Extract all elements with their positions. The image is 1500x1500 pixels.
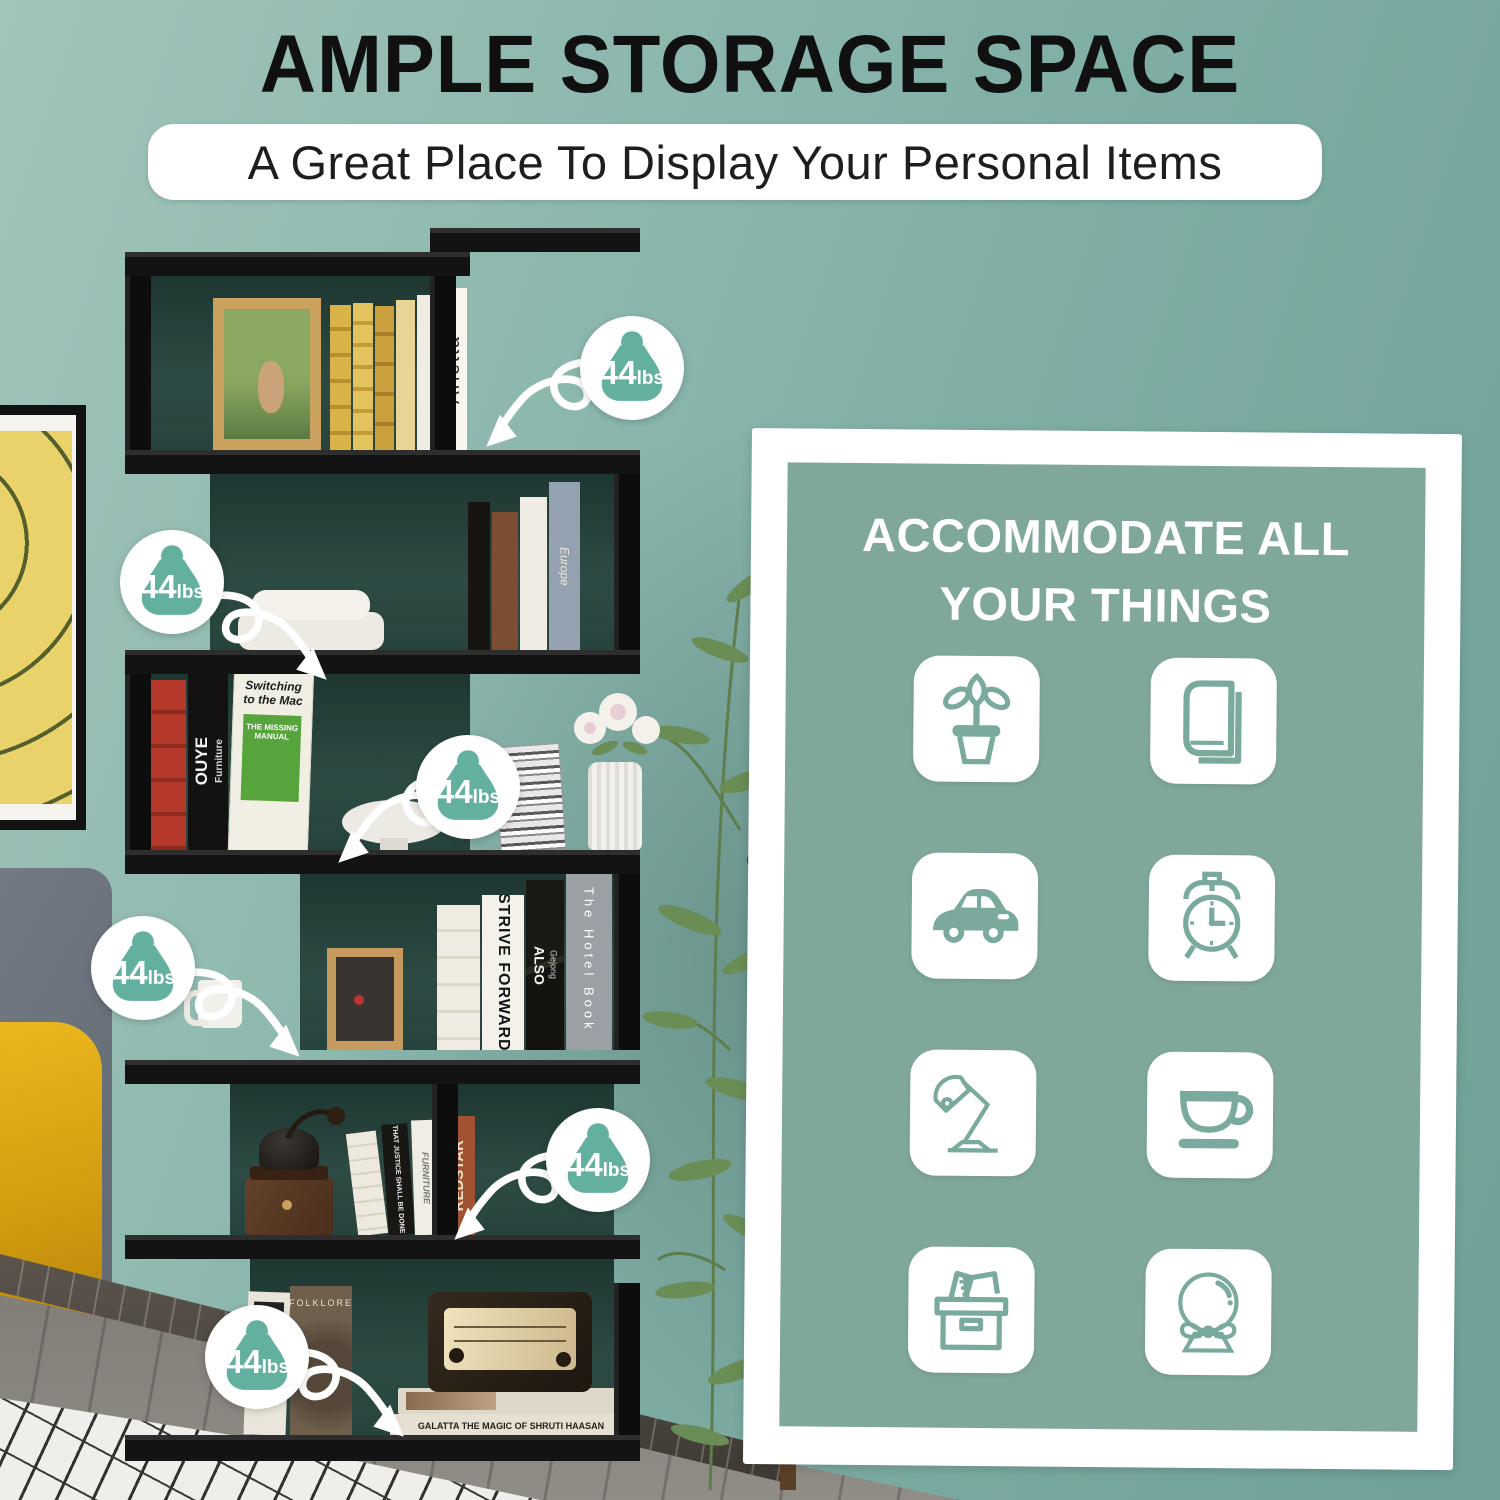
book-spine-also: ALSOGejong <box>526 880 564 1050</box>
shelf-board-top <box>125 252 470 276</box>
book-spine-europe: Europe <box>549 482 580 650</box>
badge-unit: lbs <box>262 1357 289 1378</box>
book-spine-strive: STRIVE FORWARD <box>482 895 524 1050</box>
book-title: FURNITURE <box>420 1151 432 1203</box>
panel-heading-line1: ACCOMMODATE ALL <box>787 500 1426 574</box>
weight-capacity-badge: 44lbs <box>416 735 520 839</box>
picture-frame-small <box>327 948 403 1050</box>
badge-value: 44 <box>436 773 473 810</box>
book-title: Europe <box>558 547 572 586</box>
shelf-side-panel <box>125 674 151 850</box>
book-title: THAT JUSTICE SHALL BE DONE <box>391 1125 406 1234</box>
tile-car <box>911 852 1038 979</box>
tile-crystal-ball <box>1145 1248 1272 1375</box>
tile-desk-lamp <box>909 1049 1036 1176</box>
car-icon <box>922 864 1027 969</box>
book-spine <box>468 502 490 650</box>
book-spine <box>375 306 394 450</box>
book-subtitle: Gejong <box>549 950 559 979</box>
badge-label: 44lbs <box>580 356 684 389</box>
shelf-side-panel <box>125 252 151 450</box>
alarm-clock-icon <box>1159 866 1264 971</box>
badge-label: 44lbs <box>120 570 224 603</box>
storage-box-icon <box>919 1257 1024 1362</box>
book-subtitle: THE MISSING MANUAL <box>243 714 302 742</box>
headline: AMPLE STORAGE SPACE <box>38 18 1463 112</box>
badge-value: 44 <box>111 954 148 991</box>
crystal-ball-icon <box>1156 1260 1261 1365</box>
icon-grid <box>908 655 1277 1375</box>
weight-capacity-badge: 44lbs <box>91 916 195 1020</box>
tile-storage-box <box>908 1246 1035 1373</box>
framed-wall-art <box>0 405 86 830</box>
potted-plant-icon <box>924 667 1029 772</box>
coffee-cup-icon <box>1158 1063 1263 1168</box>
subheadline-banner: A Great Place To Display Your Personal I… <box>148 124 1322 200</box>
weight-capacity-badge: 44lbs <box>120 530 224 634</box>
tile-alarm-clock <box>1148 854 1275 981</box>
badge-value: 44 <box>140 568 177 605</box>
book-spine-ouye: OUYEFurniture <box>188 672 228 850</box>
shelf-side-panel <box>614 874 640 1050</box>
badge-value: 44 <box>600 354 637 391</box>
badge-unit: lbs <box>148 968 175 989</box>
book-spine <box>150 680 186 850</box>
book-spine <box>330 305 351 450</box>
book-spine <box>492 512 518 650</box>
book-spine <box>353 303 373 450</box>
shelf-board-top-ledge <box>430 228 640 252</box>
grinder-knob <box>282 1200 292 1210</box>
badge-unit: lbs <box>177 582 204 603</box>
tile-potted-plant <box>913 655 1040 782</box>
badge-value: 44 <box>566 1146 603 1183</box>
badge-unit: lbs <box>473 787 500 808</box>
book-title: ALSO <box>532 946 548 985</box>
ad-image: Arietta Europe OUYEFurniture Switching t… <box>0 0 1500 1500</box>
book-title: STRIVE FORWARD <box>494 895 512 1050</box>
badge-unit: lbs <box>637 368 664 389</box>
subheadline: A Great Place To Display Your Personal I… <box>248 135 1223 190</box>
book-icon <box>1161 669 1266 774</box>
radio-knob <box>449 1348 464 1363</box>
badge-unit: lbs <box>603 1160 630 1181</box>
radio-knob <box>556 1352 571 1367</box>
art-print <box>0 431 72 804</box>
tile-coffee-cup <box>1146 1051 1273 1178</box>
book-title: The Hotel Book <box>582 887 597 1033</box>
book-subtitle: Furniture <box>214 739 225 783</box>
panel-heading-line2: YOUR THINGS <box>786 568 1425 642</box>
info-panel-inner: ACCOMMODATE ALL YOUR THINGS <box>779 462 1425 1432</box>
weight-capacity-badge: 44lbs <box>546 1108 650 1212</box>
picture-frame-large <box>213 298 321 450</box>
book-title: OUYE <box>192 737 212 785</box>
white-vase <box>588 762 642 850</box>
book-spine <box>396 300 415 450</box>
weight-capacity-badge: 44lbs <box>580 316 684 420</box>
badge-label: 44lbs <box>416 775 520 808</box>
desk-lamp-icon <box>921 1061 1026 1166</box>
frame-photo <box>336 957 394 1041</box>
shelf-side-panel <box>614 1283 640 1435</box>
flowers <box>560 690 670 770</box>
weight-capacity-badge: 44lbs <box>205 1305 309 1409</box>
badge-label: 44lbs <box>205 1345 309 1378</box>
grinder-crank <box>280 1098 350 1144</box>
book-spine <box>520 497 547 650</box>
book-title: GALATTA THE MAGIC OF SHRUTI HAASAN <box>418 1421 604 1431</box>
book-cover-panel: THE MISSING MANUAL <box>241 714 302 802</box>
badge-label: 44lbs <box>91 956 195 989</box>
info-panel: ACCOMMODATE ALL YOUR THINGS <box>743 428 1462 1470</box>
panel-heading: ACCOMMODATE ALL YOUR THINGS <box>786 500 1425 642</box>
book-spine-hotel: The Hotel Book <box>566 870 612 1050</box>
badge-label: 44lbs <box>546 1148 650 1181</box>
badge-value: 44 <box>225 1343 262 1380</box>
shelf-side-panel <box>614 474 640 650</box>
tile-book <box>1150 657 1277 784</box>
book-spine <box>437 905 480 1050</box>
